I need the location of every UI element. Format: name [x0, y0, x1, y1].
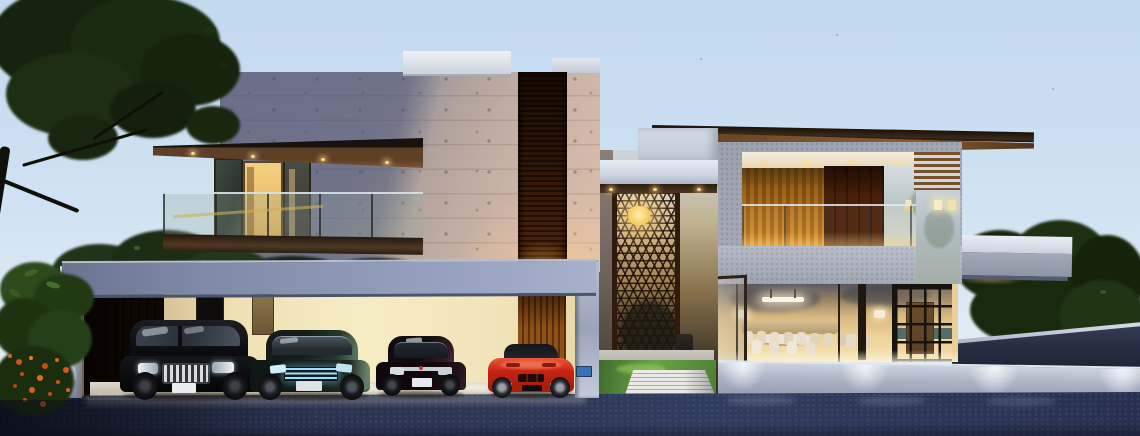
suv-wheel-left	[132, 372, 158, 400]
glass-tree-reflection	[924, 208, 954, 248]
pool-reflection	[986, 396, 1056, 406]
entry-upper-box	[638, 128, 718, 162]
right-canopy-slab	[956, 235, 1073, 281]
banquette-sofa	[742, 322, 838, 334]
suv-chrome-grille	[162, 363, 210, 384]
flower-cluster	[8, 354, 12, 358]
ceiling-light	[804, 164, 808, 167]
car-red-sports	[488, 344, 574, 398]
canopy-blob	[186, 106, 240, 144]
address-sign	[576, 366, 592, 377]
entry-pendant-lamp	[628, 206, 650, 225]
car-teal-sedan	[250, 330, 370, 400]
sky-speck	[700, 58, 702, 60]
sedan-wheel-left	[258, 374, 282, 400]
cube-sconce	[948, 200, 956, 210]
left-canopy-tree	[0, 0, 250, 206]
sedan-headlight-right	[336, 363, 353, 373]
sedan-lit-grille	[284, 367, 338, 381]
car-black-suv	[120, 318, 260, 400]
chair-pair-right	[846, 334, 856, 348]
dining-table	[756, 334, 816, 344]
pendant-cord	[638, 193, 640, 207]
sports-lower-vent	[522, 385, 542, 391]
pendant-cord	[770, 289, 772, 298]
sports-grille-slots	[518, 374, 544, 382]
leaf-highlight	[1100, 290, 1106, 294]
curtain-top-shade	[742, 168, 824, 188]
leaf-tuft	[204, 26, 216, 34]
sedan-license-plate	[296, 381, 322, 391]
suv-headlight-right	[212, 362, 234, 373]
sports-wheel-left	[492, 377, 512, 398]
entry-lattice-screen	[612, 188, 680, 364]
lit-rail-reflection	[173, 205, 323, 218]
balcony-downlight	[251, 155, 255, 158]
sports-wheel-right	[550, 377, 570, 398]
corner-glass	[916, 190, 960, 284]
soffit-light	[653, 188, 657, 191]
maroon-wheel-right	[440, 374, 460, 396]
linear-pendant-light	[762, 297, 804, 302]
suv-license-plate	[172, 383, 196, 393]
leaf-highlight	[134, 246, 140, 250]
table-lamp	[874, 310, 885, 318]
open-door-frame	[858, 284, 866, 360]
canopy-blob	[110, 82, 196, 138]
entry-soffit-band	[599, 184, 717, 193]
roof-parapet-small	[552, 58, 600, 73]
villa-dusk-render	[0, 0, 1140, 436]
soffit-light	[609, 188, 613, 191]
pool-reflection	[726, 395, 796, 405]
cube-sconce	[934, 200, 942, 210]
carport-fascia	[62, 259, 596, 298]
roof-parapet-white	[403, 51, 511, 76]
maroon-windshield	[394, 342, 448, 358]
corner-vignette	[0, 400, 260, 436]
maroon-license-plate	[412, 378, 432, 387]
entry-bridge-beam	[597, 160, 718, 186]
pool-reflection	[856, 396, 926, 406]
canopy-white-band	[956, 235, 1072, 254]
balcony-slab	[163, 234, 423, 255]
suv-wheel-right	[222, 372, 248, 400]
balcony-downlight	[321, 158, 325, 161]
soffit-light	[697, 188, 701, 191]
pendant-cord	[794, 289, 796, 298]
canopy-gray-band	[956, 252, 1072, 277]
sedan-wheel-right	[340, 374, 364, 400]
popup-headlight-left	[506, 363, 520, 367]
sky-speck	[1052, 88, 1054, 90]
suv-pillar	[178, 326, 182, 346]
sky-speck	[836, 34, 838, 36]
woven-screen	[914, 152, 960, 190]
popup-headlight-right	[542, 363, 556, 367]
car-maroon-sedan	[376, 336, 466, 398]
canopy-underlight	[960, 279, 1036, 287]
leaf-tuft	[218, 62, 228, 69]
sedan-headlight-left	[270, 364, 287, 374]
maroon-wheel-left	[382, 374, 402, 396]
balcony-downlight	[385, 161, 389, 164]
ceiling-light	[762, 164, 766, 167]
maroon-emblem	[419, 366, 423, 370]
